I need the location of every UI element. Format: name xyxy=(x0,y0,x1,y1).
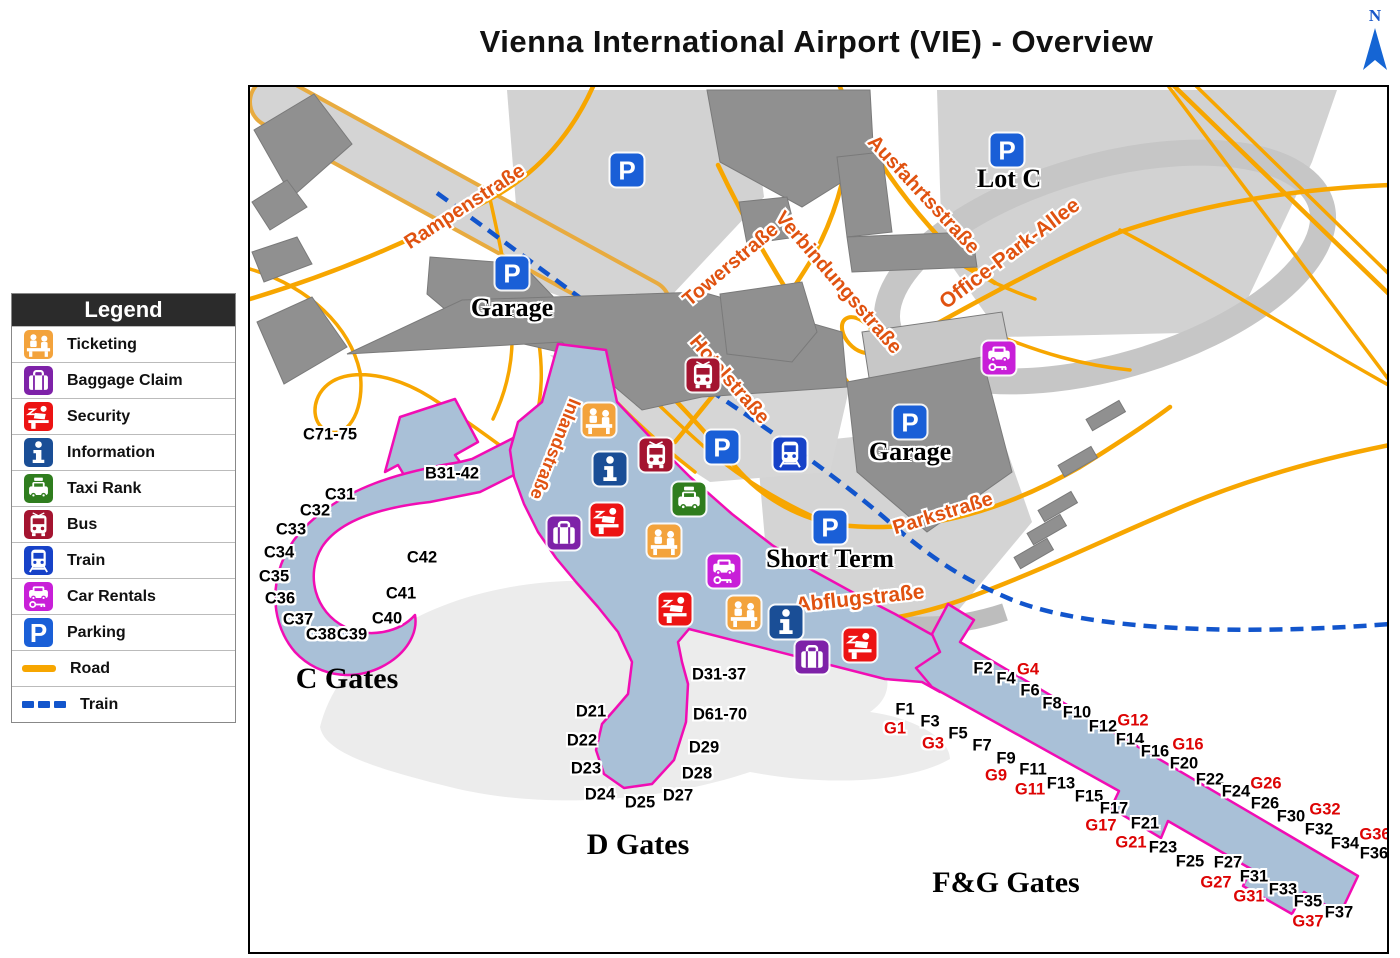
poi-baggage-icon xyxy=(24,366,53,395)
legend-item-security: Security xyxy=(12,398,235,434)
legend-panel: Legend TicketingBaggage ClaimSecurityInf… xyxy=(11,293,236,723)
legend-item-bus: Bus xyxy=(12,506,235,542)
area-labels-layer: C GatesD GatesF&G Gates xyxy=(250,87,1387,952)
legend-item-car-rentals: Car Rentals xyxy=(12,578,235,614)
poi-train-icon xyxy=(24,546,53,575)
legend-item-train-line: Train xyxy=(12,686,235,722)
poi-ticketing-icon xyxy=(24,330,53,359)
legend-item-taxi: Taxi Rank xyxy=(12,470,235,506)
legend-item-ticketing: Ticketing xyxy=(12,326,235,362)
legend-item-label: Bus xyxy=(67,516,97,534)
legend-item-label: Parking xyxy=(67,624,126,642)
legend-item-label: Baggage Claim xyxy=(67,372,183,390)
legend-item-information: Information xyxy=(12,434,235,470)
north-arrow-icon xyxy=(1358,26,1392,76)
legend-item-label: Ticketing xyxy=(67,336,137,354)
legend-title: Legend xyxy=(12,294,235,326)
legend-item-parking: PParking xyxy=(12,614,235,650)
poi-taxi-icon xyxy=(24,474,53,503)
poi-parking-icon: P xyxy=(24,618,53,647)
legend-item-baggage: Baggage Claim xyxy=(12,362,235,398)
poi-security-icon xyxy=(24,402,53,431)
legend-rows: TicketingBaggage ClaimSecurityInformatio… xyxy=(12,326,235,722)
legend-item-label: Security xyxy=(67,408,130,426)
legend-item-label: Taxi Rank xyxy=(67,480,141,498)
north-label: N xyxy=(1352,6,1398,26)
area-label: F&G Gates xyxy=(932,866,1079,900)
poi-bus-icon xyxy=(24,510,53,539)
legend-item-label: Car Rentals xyxy=(67,588,156,606)
airport-map-page: Vienna International Airport (VIE) - Ove… xyxy=(0,0,1400,958)
legend-item-road: Road xyxy=(12,650,235,686)
legend-item-label: Information xyxy=(67,444,155,462)
area-label: C Gates xyxy=(296,662,398,696)
page-title: Vienna International Airport (VIE) - Ove… xyxy=(248,24,1385,60)
parking-letter: P xyxy=(30,620,47,646)
legend-item-label: Train xyxy=(80,696,118,714)
legend-item-train: Train xyxy=(12,542,235,578)
legend-item-label: Train xyxy=(67,552,105,570)
map-container: RampenstraßeTowerstraßeVerbindungsstraße… xyxy=(248,85,1389,954)
poi-information-icon xyxy=(24,438,53,467)
poi-car-rentals-icon xyxy=(24,582,53,611)
legend-item-label: Road xyxy=(70,660,110,678)
area-label: D Gates xyxy=(587,828,689,862)
north-compass: N xyxy=(1352,6,1398,84)
road-line-icon xyxy=(22,665,56,672)
train-line-icon xyxy=(22,701,66,708)
